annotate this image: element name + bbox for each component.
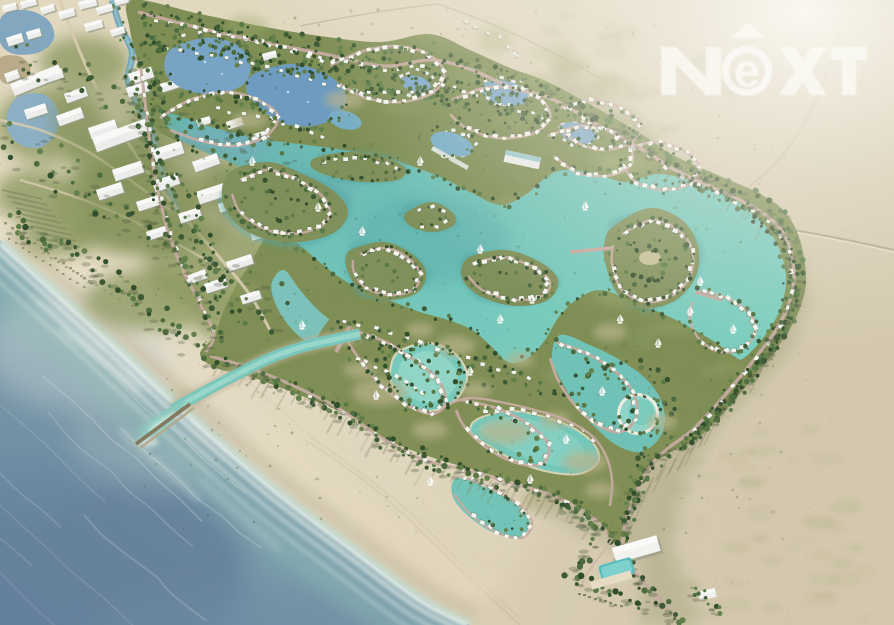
svg-text:e: e — [734, 44, 760, 97]
